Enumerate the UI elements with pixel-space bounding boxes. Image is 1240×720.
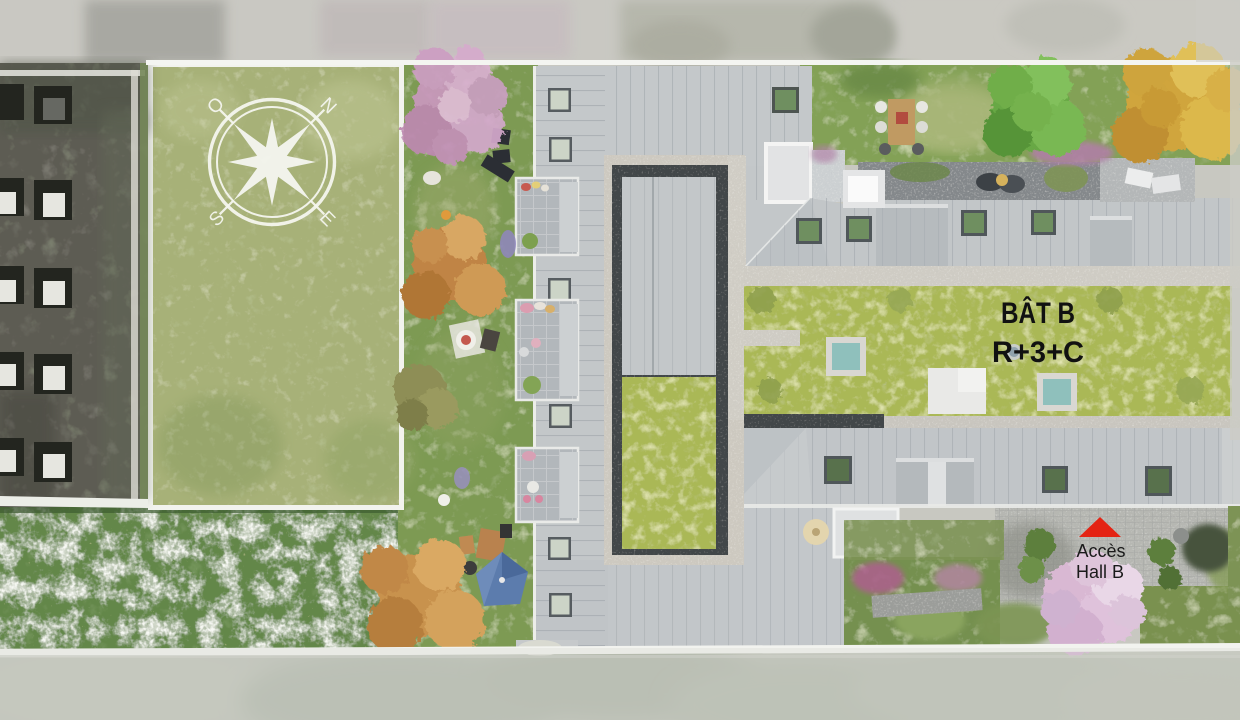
svg-text:Hall B: Hall B: [1076, 562, 1124, 582]
svg-text:Accès: Accès: [1076, 541, 1125, 561]
svg-text:R+3+C: R+3+C: [992, 336, 1084, 369]
svg-text:BÂT B: BÂT B: [1001, 296, 1075, 330]
